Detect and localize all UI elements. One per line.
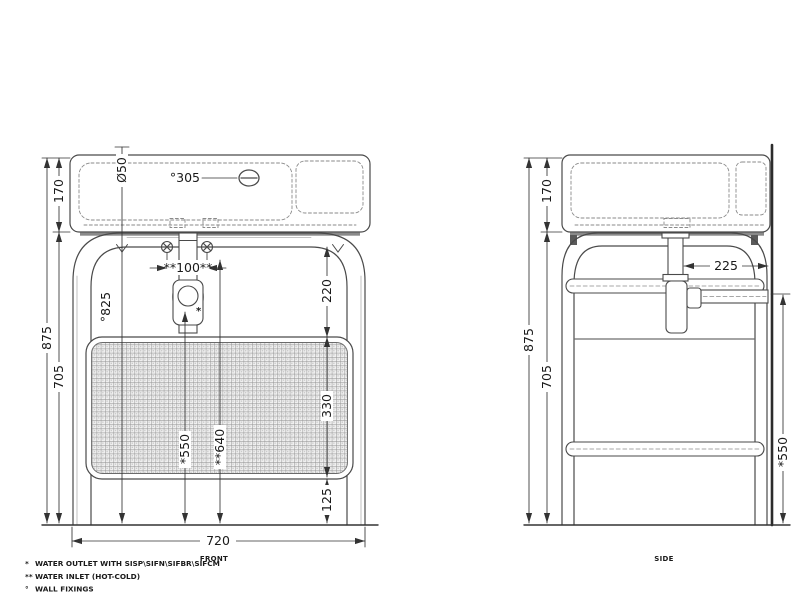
side-dim-trap-to-wall: 225 <box>714 258 738 273</box>
front-dim-rail-to-panel: 220 <box>319 279 334 303</box>
front-dim-total-height: 875 <box>39 326 54 350</box>
front-dim-hole-diameter: Ø50 <box>114 157 129 183</box>
technical-drawing-sheet: * <box>0 0 800 600</box>
side-dim-basin-height: 170 <box>539 179 554 203</box>
front-view: * <box>39 147 378 563</box>
technical-drawing: * <box>0 0 800 600</box>
tailpiece <box>668 235 683 276</box>
front-dim-panel-to-floor: 125 <box>319 488 334 512</box>
side-rails <box>566 279 764 456</box>
side-view: 875 170 705 *550 225 SIDE <box>521 145 790 563</box>
footnote-text: WALL FIXINGS <box>35 585 94 594</box>
front-dim-panel-height: 330 <box>319 394 334 418</box>
outlet-mark: * <box>196 306 202 317</box>
footnote-marker: ** <box>25 572 33 581</box>
front-dim-fixing-height: °825 <box>98 292 113 322</box>
front-dim-fixing-offset: °305 <box>170 170 200 185</box>
footnote-text: WATER OUTLET WITH SISP\SIFN\SIFBR\SIFCM <box>35 559 220 568</box>
front-dim-outlet-height: *550 <box>177 434 192 464</box>
fixing-arrow-icons <box>117 245 344 253</box>
footnotes: *WATER OUTLET WITH SISP\SIFN\SIFBR\SIFCM… <box>25 559 220 594</box>
side-caption: SIDE <box>654 555 673 563</box>
front-dim-frame-height: 705 <box>51 365 66 389</box>
front-dim-inlet-spacing: **100** <box>164 260 213 275</box>
drain-pipe-front <box>173 233 204 333</box>
side-dim-fixing-height: *550 <box>775 437 790 467</box>
side-dim-frame-height: 705 <box>539 365 554 389</box>
footnote-marker: ° <box>25 585 29 594</box>
trap-elbow <box>687 288 701 308</box>
side-dim-total-height: 875 <box>521 328 536 352</box>
front-dim-overall-width: 720 <box>206 533 230 548</box>
front-dim-basin-height: 170 <box>51 179 66 203</box>
trap-body <box>666 281 687 333</box>
footnote-text: WATER INLET (HOT-COLD) <box>35 572 140 581</box>
basin-side <box>562 155 770 245</box>
footnote-water-inlet: **WATER INLET (HOT-COLD) <box>25 572 140 581</box>
front-dim-inlet-height: **640 <box>212 429 227 465</box>
footnote-wall-fixings: °WALL FIXINGS <box>25 585 94 594</box>
footnote-marker: * <box>25 559 29 568</box>
footnote-water-outlet: *WATER OUTLET WITH SISP\SIFN\SIFBR\SIFCM <box>25 559 220 568</box>
